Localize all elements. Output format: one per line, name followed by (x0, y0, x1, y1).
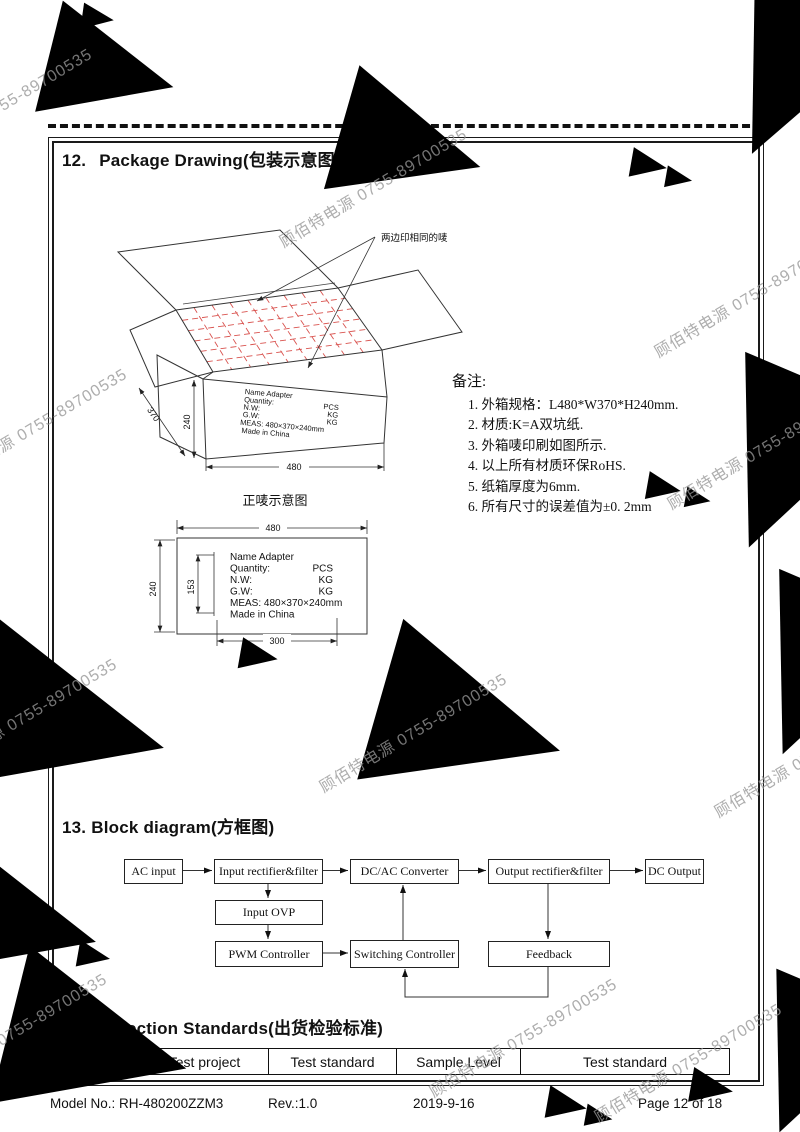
table-header-sample-level: Sample Level (397, 1049, 521, 1074)
section-14-title: 14.Inspection Standards(出货检验标准) (62, 1014, 383, 1039)
table-header-no: NO. (86, 1049, 141, 1074)
section-14-number: 14. (62, 1019, 86, 1039)
front-dim-label-height: 153 (186, 579, 196, 594)
remark-item: 6. 所有尺寸的误差值为±0. 2mm (468, 497, 702, 518)
block-input-rectifier: Input rectifier&filter (214, 859, 323, 884)
top-dashed-divider (48, 124, 762, 128)
section-14-label: Inspection Standards(出货检验标准) (91, 1019, 383, 1038)
front-mark-drawing: 正唛示意图 480 240 153 300 Name Adapter Quant… (140, 488, 380, 658)
remark-item: 4. 以上所有材质环保RoHS. (468, 456, 702, 477)
svg-text:Name Adapter: Name Adapter (230, 552, 295, 563)
triangle-watermark-icon (582, 1102, 616, 1132)
block-pwm-controller: PWM Controller (215, 941, 323, 967)
footer-page-number: Page 12 of 18 (638, 1096, 722, 1111)
carton-callout: 两边印相同的唛 (257, 232, 448, 368)
svg-text:MEAS: 480×370×240mm: MEAS: 480×370×240mm (230, 598, 342, 609)
remark-item: 1. 外箱规格：L480*W370*H240mm. (468, 395, 702, 416)
footer-revision: Rev.:1.0 (268, 1096, 317, 1111)
table-header-test-standard: Test standard (269, 1049, 397, 1074)
front-dim-width: 480 (265, 523, 280, 533)
remarks-title: 备注: (452, 372, 702, 393)
block-switching-controller: Switching Controller (350, 940, 459, 968)
document-page: 12.Package Drawing(包装示意图) (0, 0, 800, 1132)
dim-height: 240 (182, 414, 192, 429)
triangle-watermark-icon (0, 0, 231, 156)
table-header-test-project: Test project (141, 1049, 269, 1074)
front-mark-label: Name Adapter Quantity: PCS N.W: KG G.W: … (230, 552, 342, 621)
carton-partition-grid (182, 290, 375, 369)
section-13-number: 13. (62, 818, 86, 838)
section-12-label: Package Drawing(包装示意图) (99, 151, 341, 170)
remark-item: 3. 外箱唛印刷如图所示. (468, 436, 702, 457)
remark-item: 2. 材质:K=A双坑纸. (468, 415, 702, 436)
triangle-watermark-icon (542, 1082, 592, 1127)
block-dc-output: DC Output (645, 859, 704, 884)
front-dim-height: 240 (148, 581, 158, 596)
svg-text:KG: KG (319, 575, 334, 586)
footer-model-no: Model No.: RH-480200ZZM3 (50, 1096, 223, 1111)
svg-text:N.W:: N.W: (230, 575, 252, 586)
remarks-block: 备注: 1. 外箱规格：L480*W370*H240mm. 2. 材质:K=A双… (452, 372, 702, 518)
footer-date: 2019-9-16 (413, 1096, 475, 1111)
remark-item: 5. 纸箱厚度为6mm. (468, 477, 702, 498)
triangle-watermark-icon (78, 1, 118, 36)
block-input-ovp: Input OVP (215, 900, 323, 925)
svg-text:PCS: PCS (312, 564, 333, 575)
svg-text:Quantity:: Quantity: (230, 564, 270, 575)
table-header-test-standard-2: Test standard (521, 1049, 729, 1074)
block-ac-input: AC input (124, 859, 183, 884)
dim-length: 480 (286, 462, 301, 472)
section-12-number: 12. (62, 151, 86, 171)
svg-text:G.W:: G.W: (230, 587, 253, 598)
section-13-label: Block diagram(方框图) (91, 818, 274, 837)
block-output-rectifier: Output rectifier&filter (488, 859, 610, 884)
block-dcac-converter: DC/AC Converter (350, 859, 459, 884)
carton-drawing: Name Adapter Quantity: PCS N.W: KG G.W: … (95, 222, 465, 487)
front-mark-title: 正唛示意图 (242, 493, 307, 508)
svg-text:KG: KG (326, 417, 338, 427)
svg-text:KG: KG (319, 587, 334, 598)
section-12-title: 12.Package Drawing(包装示意图) (62, 146, 341, 171)
svg-text:Made in China: Made in China (230, 610, 295, 621)
front-dim-label-width: 300 (269, 636, 284, 646)
carton-face-label: Name Adapter Quantity: PCS N.W: KG G.W: … (239, 387, 340, 443)
inspection-table: NO. Test project Test standard Sample Le… (85, 1048, 730, 1075)
section-13-title: 13.Block diagram(方框图) (62, 813, 274, 838)
callout-text: 两边印相同的唛 (381, 232, 448, 244)
block-feedback: Feedback (488, 941, 610, 967)
